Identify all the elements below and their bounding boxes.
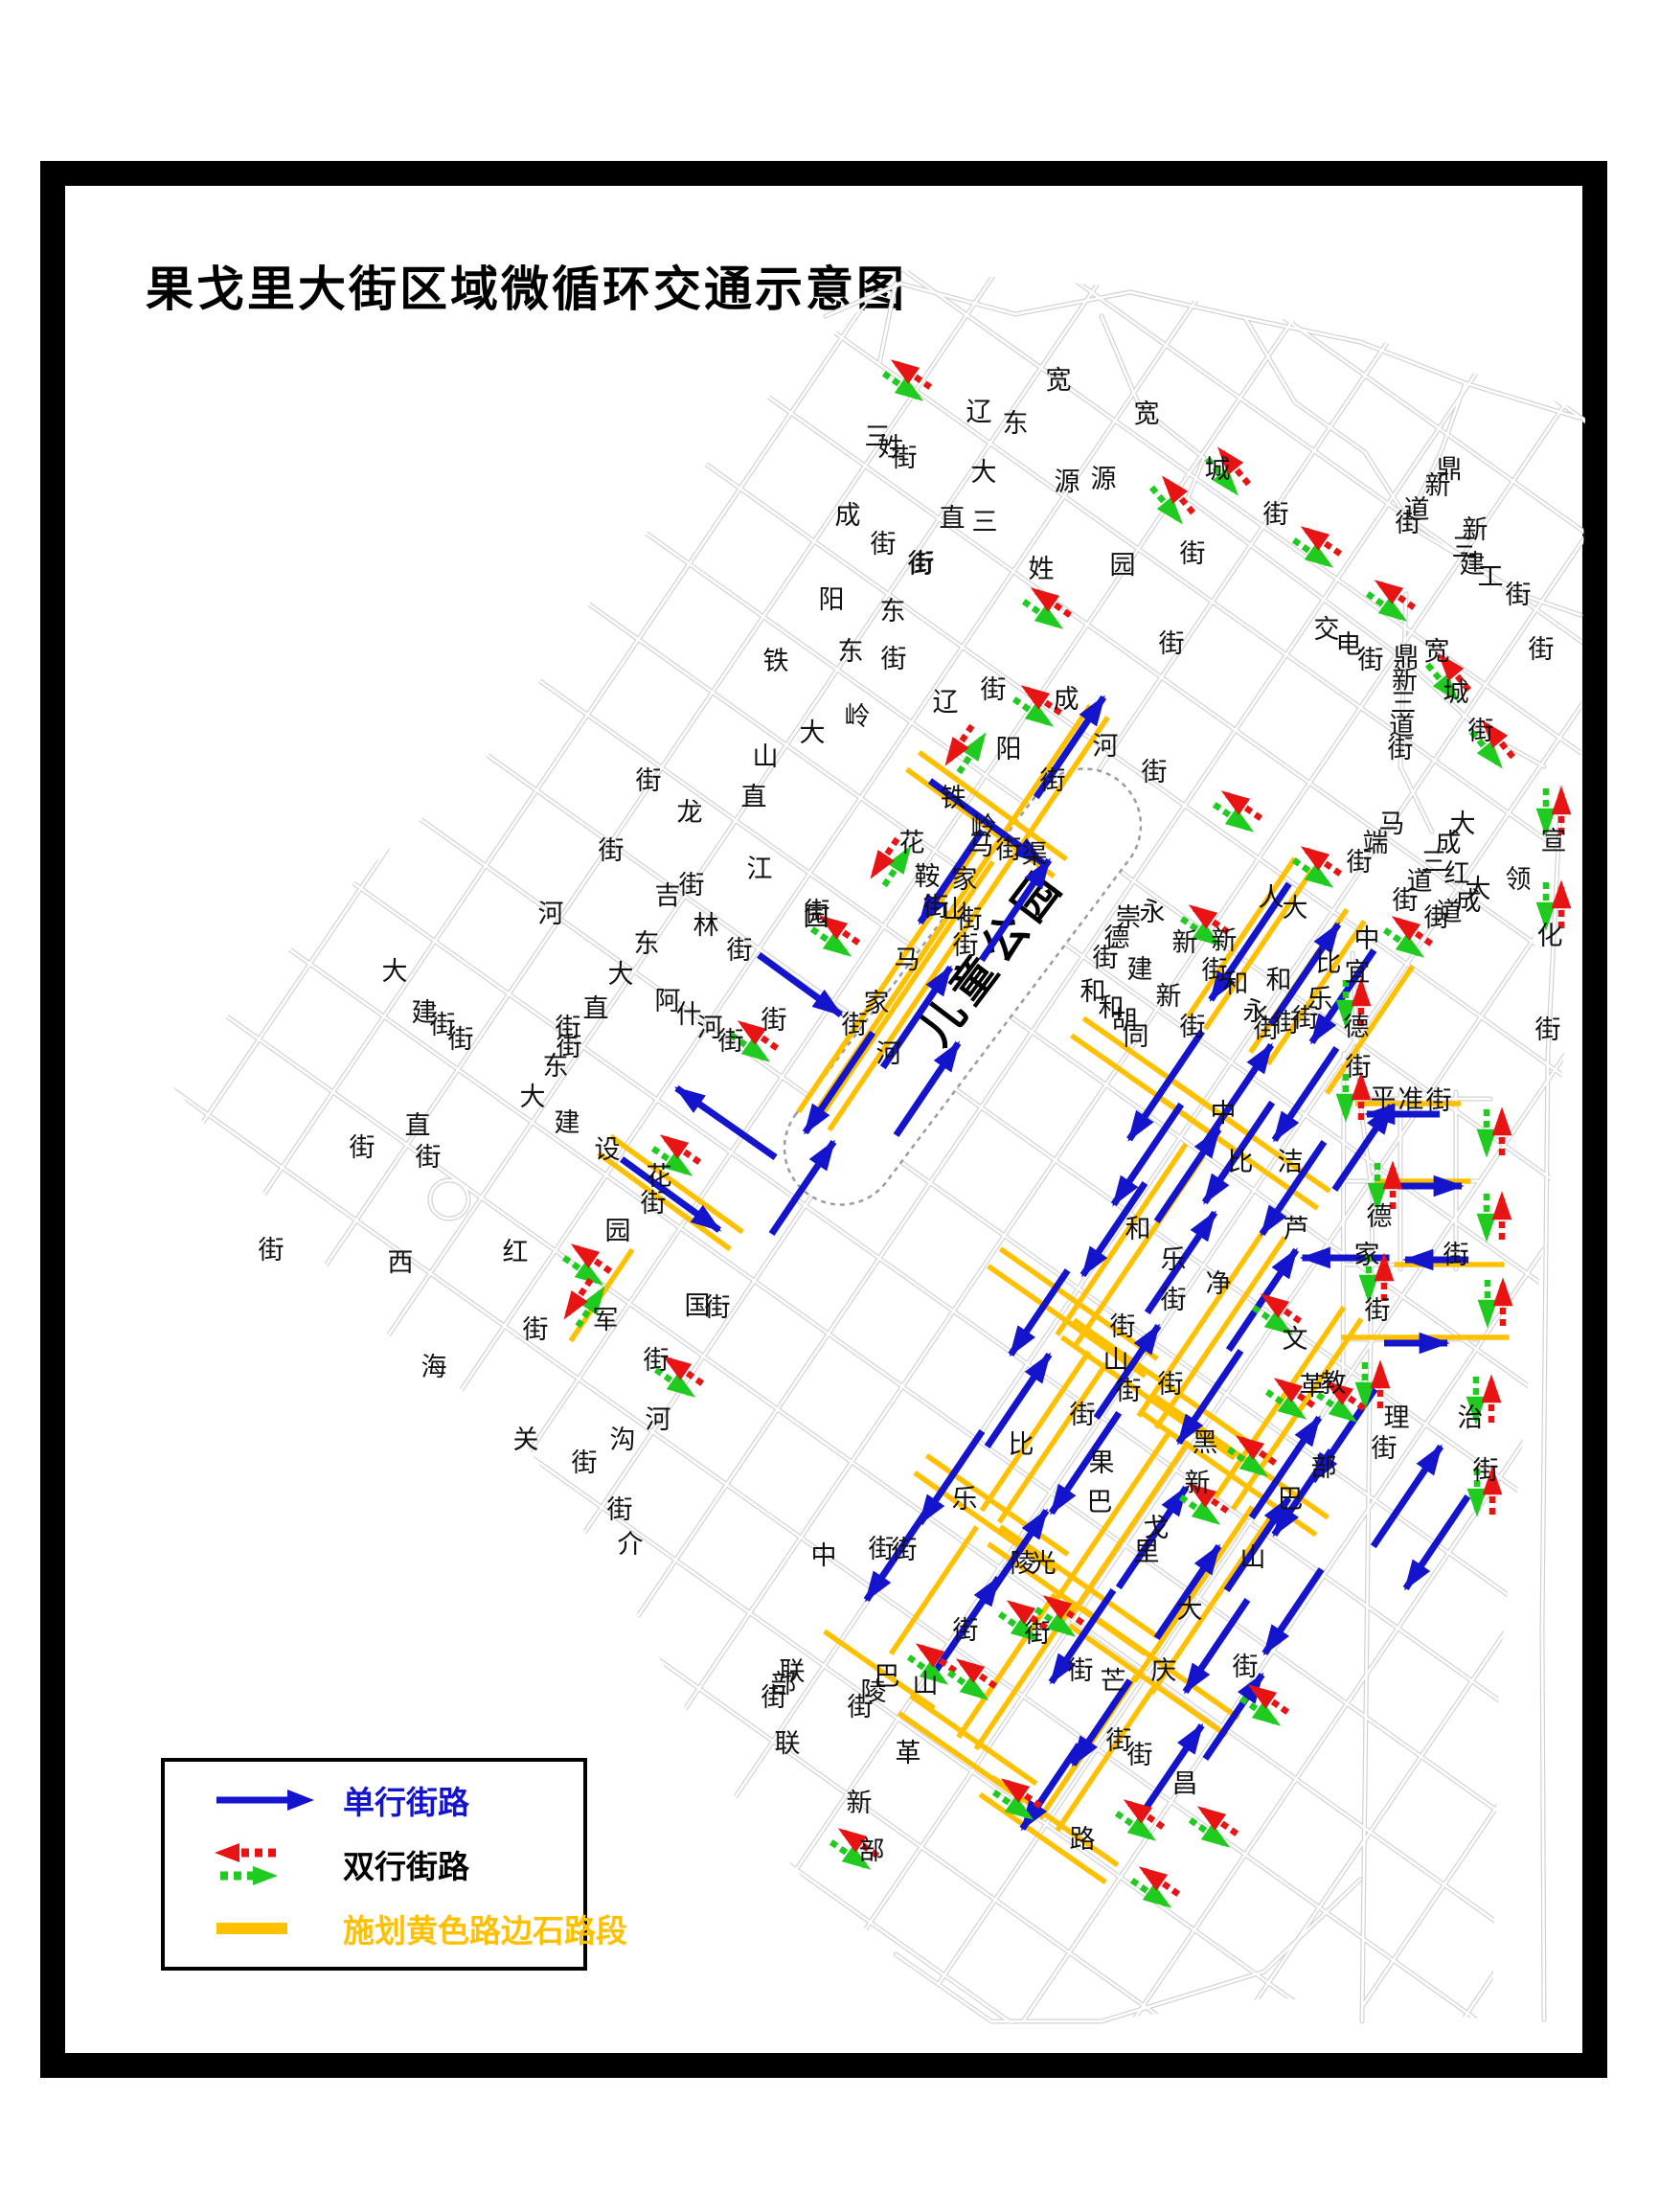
street-name-char: 大 <box>971 458 997 487</box>
street-name-char: 花 <box>899 829 925 857</box>
street-name-char: 芦 <box>1284 1215 1309 1243</box>
roundabout <box>430 1180 468 1219</box>
legend-item-yellow-curb: 施划黄色路边石路段 <box>165 1905 583 1951</box>
street-line <box>0 0 873 1537</box>
street-name-char: 宽 <box>1134 399 1160 428</box>
yellow-curb-icon <box>213 1921 318 1936</box>
street-name-char: 比 <box>1009 1430 1034 1459</box>
street-name-char: 庆 <box>1151 1656 1177 1685</box>
street-name-char: 大 <box>382 957 408 986</box>
street-name-char: 中 <box>1211 1099 1237 1128</box>
street-line <box>0 0 946 1589</box>
legend-yellow-curb-label: 施划黄色路边石路段 <box>343 1905 627 1951</box>
street-name-char: 成 <box>1054 685 1079 714</box>
one-way-arrow-icon <box>213 1786 318 1814</box>
street-line <box>1102 316 1140 407</box>
street-name-char: 家 <box>952 865 978 894</box>
street-name-char: 乐 <box>952 1485 978 1514</box>
street-name-char: 革 <box>896 1739 921 1767</box>
street-name-char: 比 <box>1228 1148 1254 1176</box>
street-name-char: 介 <box>618 1530 644 1559</box>
street-line <box>0 0 946 1589</box>
street-name-char: 德 <box>1367 1202 1393 1231</box>
street-name-char: 军 <box>593 1306 619 1334</box>
street-name-char: 街 <box>644 1346 670 1375</box>
street-name-char: 街 <box>636 766 662 795</box>
street-line <box>599 104 1659 2212</box>
street-name-char: 净 <box>1206 1269 1232 1298</box>
two-way-arrow-pair <box>1294 848 1340 887</box>
street-name-char: 街 <box>1358 646 1384 674</box>
street-name-char: 龙 <box>677 798 703 827</box>
street-name-char: 东 <box>1003 409 1029 438</box>
street-line <box>1043 422 1659 2212</box>
street-name-char: 教 <box>1321 1369 1347 1398</box>
street-name-char: 街 <box>909 549 935 578</box>
street-name-char: 街 <box>1040 766 1066 795</box>
street-name-char: 铁 <box>763 647 789 675</box>
street-name-char: 文 <box>1283 1325 1308 1354</box>
street-name-char: 街 <box>1070 1401 1096 1429</box>
street-name-char: 德 <box>1344 1013 1370 1041</box>
street-name-char: 巴 <box>1087 1488 1113 1516</box>
street-name-char: 街 <box>705 1293 731 1322</box>
street-name-char: 姓 <box>1029 555 1055 583</box>
street-name-char: 街 <box>259 1236 284 1265</box>
street-name-char: 山 <box>753 742 779 771</box>
street-name-char: 街 <box>1426 1086 1452 1115</box>
street-name-char: 街 <box>1346 1053 1372 1082</box>
street-line <box>0 0 873 1537</box>
street-name-char: 宣 <box>1541 827 1567 855</box>
street-name-char: 街 <box>1180 539 1206 568</box>
street-name-char: 大 <box>1283 894 1308 923</box>
street-name-char: 源 <box>1055 467 1080 496</box>
street-name-char: 街 <box>871 530 897 559</box>
street-name-char: 新 <box>1212 926 1238 955</box>
street-name-char: 街 <box>848 1693 874 1722</box>
street-name-char: 街 <box>599 836 625 865</box>
street-line <box>0 0 1020 1642</box>
street-name-char: 同 <box>1124 1022 1149 1051</box>
street-name-char: 园 <box>804 902 829 931</box>
two-way-arrow-icon <box>213 1841 318 1887</box>
street-name-char: 直 <box>940 504 966 533</box>
street-name-char: 成 <box>835 501 861 530</box>
street-name-char: 街 <box>350 1133 375 1162</box>
one-way-arrow <box>1275 1048 1337 1140</box>
street-line <box>599 104 1659 2212</box>
street-name-char: 海 <box>421 1353 447 1381</box>
street-name-char: 直 <box>405 1111 431 1140</box>
street-name-char: 街 <box>1393 886 1419 915</box>
street-name-char: 大 <box>800 718 826 747</box>
street-name-char: 永 <box>1140 898 1166 926</box>
street-name-char: 鞍 <box>915 862 941 891</box>
street-name-char: 源 <box>1091 465 1117 493</box>
street-name-char: 街 <box>1159 629 1185 658</box>
street-name-char: 街 <box>1365 1296 1391 1325</box>
street-name-char: 花 <box>647 1162 672 1191</box>
street-name-char: 阳 <box>996 735 1022 764</box>
legend-item-two-way: 双行街路 <box>165 1841 583 1887</box>
street-name-char: 红 <box>503 1238 529 1266</box>
street-line <box>0 974 1568 2212</box>
street-name-char: 街 <box>1254 1015 1280 1043</box>
street-name-char: 城 <box>1205 455 1231 484</box>
street-name-char: 街 <box>1443 1241 1469 1269</box>
street-name-char: 宽 <box>1424 637 1450 666</box>
street-name-char: 辽 <box>933 688 959 717</box>
street-name-char: 中 <box>1354 924 1380 953</box>
street-name-char: 街 <box>572 1448 598 1477</box>
street-name-char: 街 <box>1424 903 1450 932</box>
street-line <box>1400 766 1432 832</box>
yellow-curb-segment <box>992 1777 1118 1865</box>
street-name-char: 路 <box>1070 1825 1096 1854</box>
street-name-char: 山 <box>1240 1543 1266 1572</box>
street-name-char: 街 <box>448 1025 474 1054</box>
street-name-char: 林 <box>693 911 719 940</box>
street-name-char: 家 <box>1354 1241 1380 1269</box>
street-name-char: 和 <box>1223 969 1249 998</box>
street-name-char: 江 <box>747 855 773 883</box>
street-name-char: 和 <box>1266 966 1292 994</box>
street-name-char: 建 <box>555 1108 580 1137</box>
street-name-char: 家 <box>864 989 890 1017</box>
street-name-char: 辽 <box>966 398 992 426</box>
street-name-char: 联 <box>775 1729 801 1758</box>
legend-one-way-label: 单行街路 <box>343 1777 469 1823</box>
street-name-char: 果 <box>1089 1448 1115 1477</box>
street-name-char: 街 <box>641 1189 667 1218</box>
street-name-char: 渠 <box>1022 840 1048 869</box>
street-name-char: 芒 <box>1101 1667 1126 1696</box>
street-name-char: 比 <box>1316 948 1342 977</box>
street-name-char: 新 <box>1172 928 1198 957</box>
street-name-char: 街 <box>1025 1619 1051 1648</box>
street-name-char: 河 <box>876 1039 902 1068</box>
street-line <box>1102 1972 1264 2021</box>
street-name-char: 阳 <box>819 585 845 614</box>
street-name-char: 理 <box>1384 1403 1410 1432</box>
street-name-char: 乐 <box>1161 1245 1187 1274</box>
street-name-char: 马 <box>895 946 920 974</box>
street-name-char: 巴 <box>1278 1485 1304 1514</box>
street-name-char: 街 <box>416 1143 442 1172</box>
street-name-char: 吉 <box>655 881 681 910</box>
street-name-char: 部 <box>859 1836 885 1865</box>
street-name-char: 工 <box>1478 562 1504 591</box>
one-way-arrow <box>1011 1270 1067 1355</box>
street-name-char: 街 <box>1127 1741 1153 1769</box>
one-way-arrow <box>1264 1569 1321 1653</box>
street-line <box>451 0 1659 2212</box>
street-name-char: 山 <box>1103 1346 1129 1375</box>
street-name-char: 直 <box>583 994 609 1023</box>
street-name-char: 街 <box>1233 1653 1259 1681</box>
street-name-char: 人 <box>1259 883 1284 912</box>
street-line <box>398 0 1659 908</box>
street-line <box>1245 318 1360 342</box>
street-name-char: 园 <box>1110 551 1136 580</box>
street-name-char: 街 <box>1116 1377 1142 1405</box>
street-name-char: 街 <box>1372 1434 1398 1463</box>
street-name-char: 街 <box>1093 944 1119 972</box>
legend-item-one-way: 单行街路 <box>165 1777 583 1823</box>
street-name-char: 新 <box>847 1789 873 1817</box>
street-line <box>0 0 1020 1642</box>
street-name-char: 街 <box>1158 1370 1184 1399</box>
two-way-arrow-pair <box>1294 528 1340 567</box>
one-way-arrow <box>1157 1546 1219 1638</box>
street-line <box>879 284 896 364</box>
street-name-char: 洁 <box>1278 1148 1304 1176</box>
street-name-char: 大 <box>520 1083 546 1111</box>
street-name-char: 中 <box>811 1541 837 1570</box>
street-line <box>398 0 1659 908</box>
street-name-char: 街 <box>842 1011 868 1039</box>
street-name-char: 街 <box>1529 635 1555 664</box>
street-name-char: 平 <box>1371 1084 1397 1113</box>
street-line <box>1466 383 1579 418</box>
street-name-char: 沟 <box>610 1425 636 1454</box>
street-name-char: 街 <box>957 905 983 934</box>
street-name-char: 街 <box>881 645 907 673</box>
street-name-char: 关 <box>513 1425 539 1454</box>
street-name-char: 街 <box>996 835 1022 864</box>
street-name-char: 街 <box>607 1495 633 1524</box>
street-name-char: 街 <box>981 675 1007 704</box>
street-name-char: 三 <box>972 508 998 536</box>
street-name-char: 街 <box>1535 1015 1561 1044</box>
two-way-arrow-pair <box>1215 792 1261 832</box>
street-name-char: 街 <box>953 1616 979 1645</box>
street-name-char: 街 <box>1473 1456 1499 1485</box>
street-name-char: 街 <box>1142 758 1168 787</box>
street-name-char: 街 <box>1263 500 1289 529</box>
street-name-char: 园 <box>605 1217 631 1245</box>
yellow-curb-segment <box>927 1455 1068 1554</box>
street-name-char: 河 <box>646 1405 671 1434</box>
street-name-char: 街 <box>1396 509 1421 537</box>
street-name-char: 光 <box>1031 1549 1057 1578</box>
street-name-char: 河 <box>1093 732 1119 761</box>
street-name-char: 大 <box>608 960 634 989</box>
street-name-char: 街 <box>1110 1312 1136 1341</box>
street-name-char: 街 <box>869 1535 895 1563</box>
street-name-char: 街 <box>953 931 979 960</box>
street-line <box>896 1954 991 2021</box>
street-name-char: 山 <box>913 1670 939 1699</box>
street-name-char: 城 <box>1443 678 1469 707</box>
street-name-char: 街 <box>761 1006 787 1035</box>
street-name-char: 街 <box>892 444 918 472</box>
street-name-char: 河 <box>538 900 564 928</box>
street-name-char: 东 <box>880 597 906 626</box>
street-line <box>821 263 1659 2212</box>
street-name-char: 街 <box>727 936 753 965</box>
street-name-char: 宽 <box>1046 366 1072 395</box>
street-name-char: 和 <box>1125 1215 1151 1243</box>
street-line <box>1043 422 1659 2212</box>
street-name-char: 岭 <box>845 702 871 731</box>
street-name-char: 街 <box>892 1536 918 1564</box>
street-name-char: 街 <box>1468 717 1494 745</box>
street-name-char: 东 <box>543 1052 569 1081</box>
one-way-arrow <box>1204 1045 1271 1145</box>
street-name-char: 街 <box>1506 581 1532 609</box>
street-name-char: 治 <box>1458 1403 1484 1432</box>
street-name-char: 铁 <box>941 784 966 812</box>
street-name-char: 直 <box>741 783 767 811</box>
street-name-char: 街 <box>679 871 705 900</box>
street-name-char: 领 <box>1506 865 1532 894</box>
street-name-char: 东 <box>838 637 864 666</box>
street-name-char: 建 <box>1127 955 1153 984</box>
street-line <box>0 974 1568 2212</box>
street-name-char: 马 <box>968 832 994 860</box>
street-name-char: 街 <box>718 1027 744 1056</box>
two-way-layer <box>564 361 1561 1907</box>
street-name-char: 东 <box>634 929 660 958</box>
two-way-arrow-pair <box>1191 1808 1237 1847</box>
street-name-char: 大 <box>1177 1595 1203 1624</box>
street-name-char: 街 <box>1068 1656 1094 1685</box>
two-way-arrow-pair <box>1487 1194 1502 1240</box>
street-name-char: 宜 <box>1345 958 1371 987</box>
street-line <box>451 0 1659 2212</box>
street-name-char: 街 <box>1293 1004 1319 1033</box>
street-name-char: 街 <box>1180 1013 1206 1041</box>
street-name-char: 街 <box>1161 1286 1187 1314</box>
street-line <box>821 263 1659 2212</box>
street-name-char: 里 <box>1134 1538 1160 1566</box>
street-name-char: 化 <box>1537 922 1563 950</box>
street-name-char: 街 <box>1388 735 1414 764</box>
street-name-char: 部 <box>1311 1453 1337 1482</box>
street-line <box>1015 292 1130 314</box>
street-name-char: 街 <box>1347 848 1373 877</box>
legend-box: 单行街路 双行街路 施划黄色路边石路段 <box>161 1758 587 1971</box>
street-name-char: 新 <box>1156 982 1182 1011</box>
street-name-char: 黑 <box>1193 1428 1218 1457</box>
street-name-char: 西 <box>388 1248 414 1277</box>
street-name-char: 新 <box>1185 1469 1211 1497</box>
street-name-char: 街 <box>761 1683 787 1712</box>
street-name-char: 昌 <box>1172 1769 1198 1798</box>
street-name-char: 设 <box>595 1135 621 1164</box>
street-name-char: 准 <box>1398 1085 1424 1114</box>
legend-two-way-label: 双行街路 <box>343 1841 469 1887</box>
street-name-char: 街 <box>523 1315 549 1344</box>
